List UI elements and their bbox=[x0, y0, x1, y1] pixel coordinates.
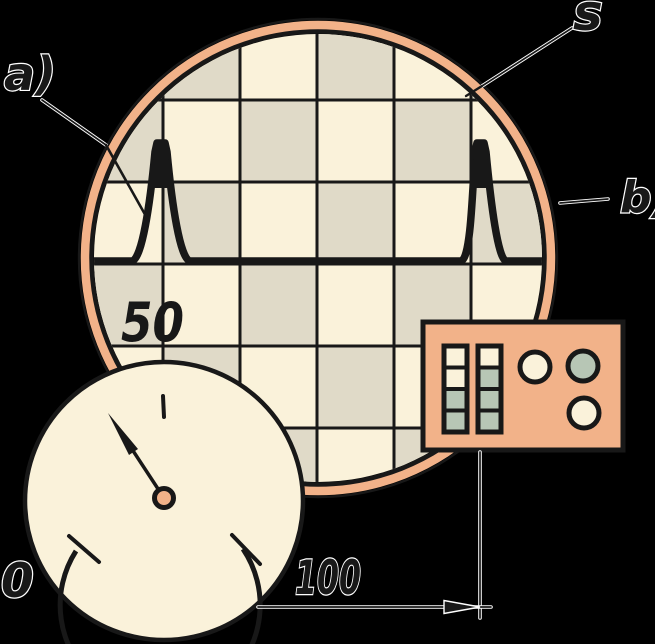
dial-min-label: 0 bbox=[1, 554, 34, 609]
switch-column-right bbox=[478, 346, 501, 432]
switch-column-left bbox=[444, 346, 467, 432]
panel-knob-cream-2 bbox=[569, 398, 599, 428]
grid-cell-dark bbox=[317, 346, 394, 428]
label-b: b) bbox=[620, 172, 655, 223]
grid-cell-dark bbox=[394, 100, 471, 182]
grid-cell-dark bbox=[240, 100, 317, 182]
diagram-canvas: 50 a) s b) bbox=[0, 0, 655, 644]
dial-pivot bbox=[155, 489, 174, 508]
control-panel bbox=[423, 322, 623, 450]
flaw-detector-illustration: 50 a) s b) bbox=[0, 0, 655, 644]
panel-knob-cream-1 bbox=[520, 352, 550, 382]
leader-b bbox=[560, 199, 608, 203]
label-a: a) bbox=[4, 47, 56, 101]
meter-dial bbox=[25, 362, 303, 644]
dimension-arrowhead bbox=[444, 601, 480, 614]
grid-cell-dark bbox=[317, 182, 394, 264]
screen-scale-label: 50 bbox=[121, 291, 184, 354]
dial-tick-top bbox=[163, 396, 164, 417]
grid-cell-dark bbox=[240, 264, 317, 346]
dial-max-label: 100 bbox=[295, 551, 361, 606]
panel-knob-sage bbox=[568, 351, 598, 381]
label-s: s bbox=[573, 0, 603, 42]
leader-s bbox=[466, 28, 572, 96]
